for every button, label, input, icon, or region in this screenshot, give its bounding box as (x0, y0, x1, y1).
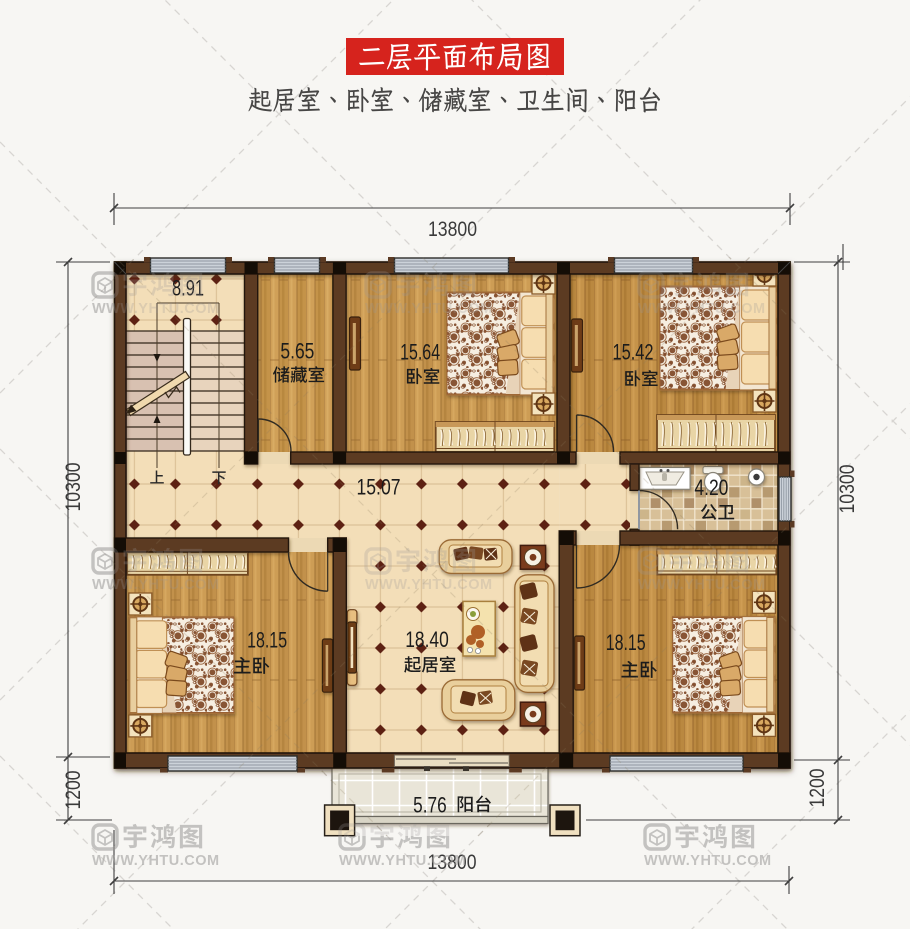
svg-text:5.65: 5.65 (280, 339, 314, 364)
svg-text:WWW.YHTU.COM: WWW.YHTU.COM (365, 577, 493, 593)
svg-text:1200: 1200 (806, 769, 829, 808)
svg-text:18.15: 18.15 (247, 628, 287, 653)
svg-text:WWW.YHTU.COM: WWW.YHTU.COM (339, 853, 467, 869)
svg-text:WWW.YHTU.COM: WWW.YHTU.COM (644, 853, 772, 869)
svg-text:10300: 10300 (836, 465, 859, 514)
svg-text:18.40: 18.40 (405, 627, 449, 652)
svg-text:WWW.YHTU.COM: WWW.YHTU.COM (365, 301, 493, 317)
svg-text:WWW.YHTU.COM: WWW.YHTU.COM (638, 301, 766, 317)
svg-text:18.15: 18.15 (606, 630, 646, 655)
svg-text:WWW.YHTU.COM: WWW.YHTU.COM (92, 853, 220, 869)
svg-text:10300: 10300 (62, 463, 85, 512)
svg-text:1200: 1200 (62, 771, 85, 810)
svg-text:15.42: 15.42 (613, 340, 654, 365)
svg-text:WWW.YHTU.COM: WWW.YHTU.COM (638, 577, 766, 593)
svg-text:4.20: 4.20 (694, 475, 728, 500)
svg-text:5.76: 5.76 (413, 793, 447, 818)
svg-text:15.07: 15.07 (357, 475, 401, 500)
svg-text:13800: 13800 (428, 218, 477, 241)
svg-text:15.64: 15.64 (400, 340, 440, 365)
